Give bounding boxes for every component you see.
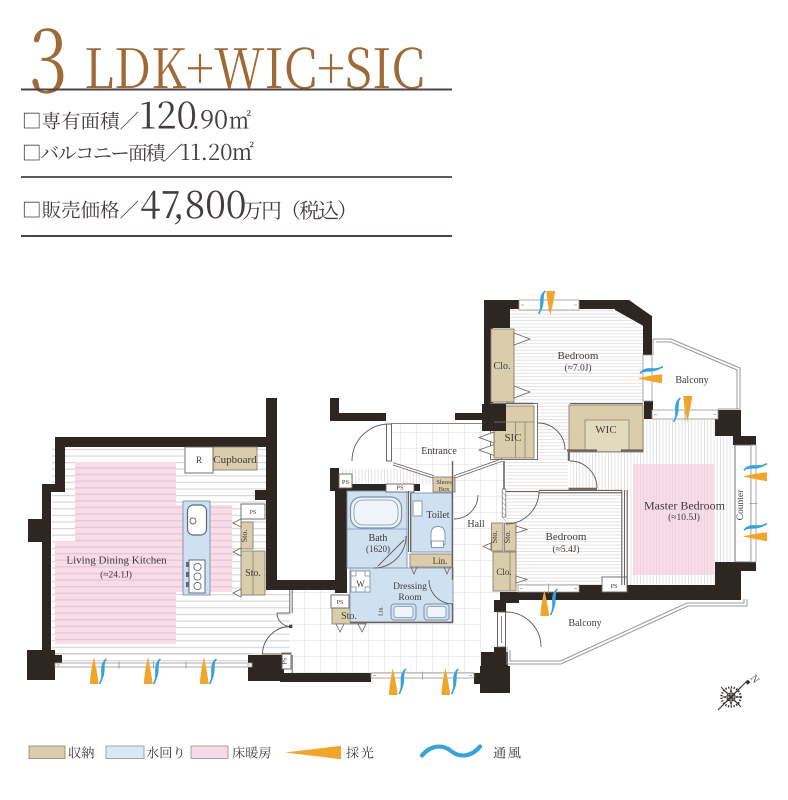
svg-text:PS: PS <box>342 479 350 486</box>
svg-text:Bedroom: Bedroom <box>546 531 587 543</box>
svg-text:Clo.: Clo. <box>494 361 511 372</box>
svg-text:Balcony: Balcony <box>568 618 601 629</box>
svg-text:Box: Box <box>439 486 451 493</box>
svg-text:Sto.: Sto. <box>245 568 261 579</box>
svg-text:W: W <box>356 579 365 589</box>
svg-text:PS: PS <box>250 510 257 516</box>
svg-text:Sto.: Sto. <box>341 611 357 622</box>
svg-text:Bath: Bath <box>369 533 388 544</box>
svg-text:Balcony: Balcony <box>675 375 708 386</box>
svg-text:WIC: WIC <box>595 424 616 436</box>
svg-text:(≈5.4J): (≈5.4J) <box>552 544 579 555</box>
svg-text:Lin.: Lin. <box>379 606 385 616</box>
svg-text:Clo.: Clo. <box>496 567 511 577</box>
svg-text:SIC: SIC <box>504 432 521 444</box>
svg-text:Hall: Hall <box>467 519 484 530</box>
svg-text:(1620): (1620) <box>366 544 390 554</box>
svg-text:Entrance: Entrance <box>421 446 457 457</box>
svg-text:PS: PS <box>337 600 344 606</box>
svg-text:Living Dining Kitchen: Living Dining Kitchen <box>66 555 167 567</box>
svg-text:(≈24.1J): (≈24.1J) <box>100 570 132 581</box>
svg-text:PS: PS <box>283 658 289 665</box>
svg-text:(≈7.0J): (≈7.0J) <box>564 363 591 374</box>
svg-text:Shoes: Shoes <box>436 479 452 486</box>
svg-text:Cupboard: Cupboard <box>213 454 257 466</box>
svg-text:Bedroom: Bedroom <box>558 350 599 362</box>
svg-text:R: R <box>196 455 202 465</box>
svg-text:Toilet: Toilet <box>426 510 449 521</box>
svg-text:Lin.: Lin. <box>433 556 448 566</box>
svg-text:PS: PS <box>611 584 618 590</box>
svg-text:Sto.: Sto. <box>240 530 249 543</box>
svg-text:Room: Room <box>398 593 422 603</box>
svg-text:Counter: Counter <box>736 489 746 520</box>
svg-text:Sto.: Sto. <box>503 531 512 544</box>
svg-text:Sto.: Sto. <box>490 531 499 544</box>
svg-text:(≈10.5J): (≈10.5J) <box>668 512 700 523</box>
svg-text:Dressing: Dressing <box>393 582 427 592</box>
svg-text:Master Bedroom: Master Bedroom <box>644 499 726 513</box>
svg-text:PS: PS <box>396 485 404 492</box>
